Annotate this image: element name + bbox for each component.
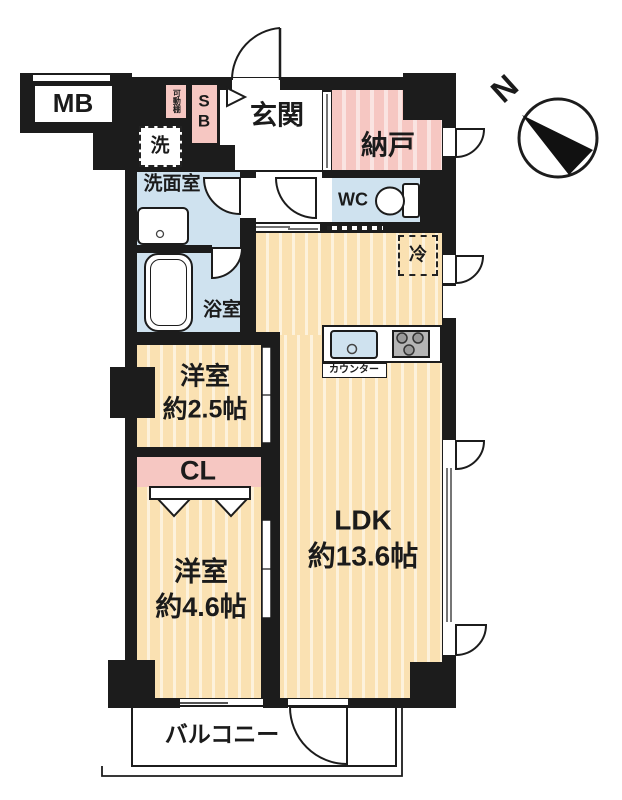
bathroom-door-arc: [212, 248, 242, 278]
ldk-size: 約13.6帖: [308, 541, 419, 572]
closet-label: CL: [180, 453, 216, 488]
shoe-box-marker-icon: [227, 88, 245, 106]
ldk-label: LDK 約13.6帖: [308, 503, 419, 576]
closet-door-fold-right: [215, 499, 247, 516]
shoe-box-label: SB: [196, 92, 213, 133]
storage-label: 納戸: [361, 128, 415, 163]
storage-door-arc: [456, 129, 484, 157]
movable-shelf-label: 可動棚: [172, 89, 181, 113]
wc-door-arc: [276, 178, 316, 218]
ldk-name: LDK: [334, 505, 392, 536]
stove-burner-icon: [413, 333, 423, 343]
ldk-window-glass-lines: [447, 468, 451, 622]
washroom-sink-drain-icon: [157, 231, 164, 238]
window2-arc: [456, 441, 484, 469]
stove-burner-icon: [404, 345, 414, 355]
bedroom-name: 洋室: [174, 557, 228, 587]
bedroom-small-label: 洋室 約2.5帖: [163, 361, 248, 426]
fridge-label: 冷: [409, 243, 427, 266]
hall-slide-lines: [256, 227, 318, 229]
window1-arc: [456, 256, 483, 283]
wc-label: WC: [338, 188, 368, 211]
bathroom-label: 浴室: [203, 299, 241, 324]
closet-door-track: [150, 487, 250, 499]
bedroom-small-size: 約2.5帖: [163, 395, 248, 423]
balcony-door-arc: [290, 707, 347, 764]
closet-door-fold-left: [158, 499, 190, 516]
washroom-door-arc: [204, 178, 240, 214]
linework-layer: [0, 0, 622, 800]
bedroom-size: 約4.6帖: [155, 592, 247, 622]
entrance-label: 玄関: [250, 98, 304, 133]
stove-burner-icon: [397, 333, 407, 343]
entrance-door-arc: [232, 28, 280, 80]
bedroom-label: 洋室 約4.6帖: [155, 555, 247, 625]
balcony-label: バルコニー: [165, 720, 280, 750]
washer-label: 洗: [150, 135, 169, 160]
window3-arc: [456, 625, 486, 655]
bedroom-small-name: 洋室: [180, 363, 230, 391]
washroom-label: 洗面室: [143, 173, 200, 198]
toilet-tank-icon: [403, 184, 419, 217]
kitchen-sink-drain-icon: [348, 345, 357, 354]
counter-label: カウンター: [329, 364, 379, 377]
mb-label: MB: [53, 87, 93, 121]
toilet-bowl-icon: [376, 188, 404, 215]
floorplan: MB 可動棚 SB 玄関 納戸 洗 洗面室 WC 浴室 冷 カウンター CL 洋…: [0, 0, 622, 800]
